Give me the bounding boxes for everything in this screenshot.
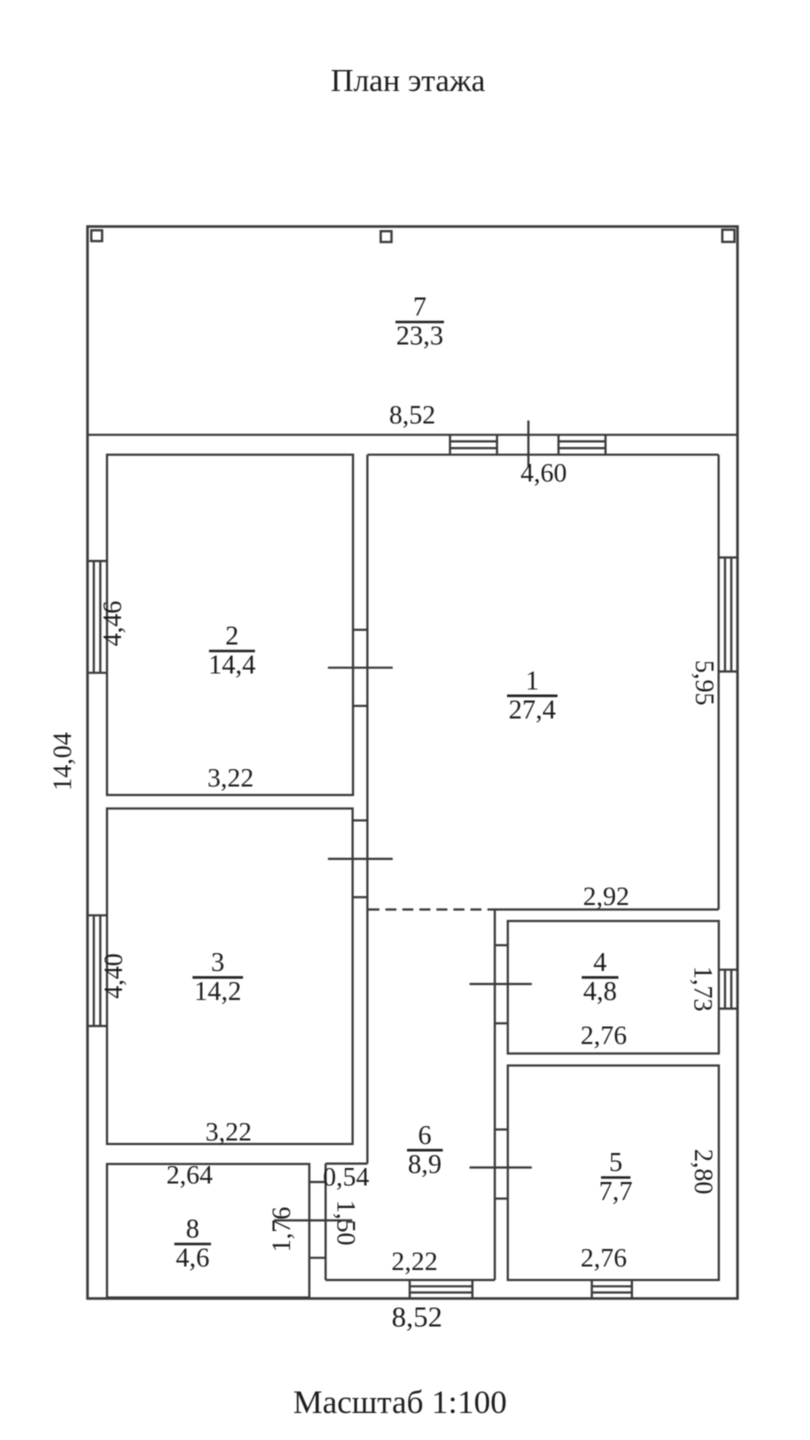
svg-text:2,92: 2,92 xyxy=(583,881,629,911)
svg-text:8,9: 8,9 xyxy=(408,1149,442,1179)
svg-text:1,73: 1,73 xyxy=(689,966,718,1012)
svg-text:7: 7 xyxy=(413,292,427,322)
svg-text:4,8: 4,8 xyxy=(583,976,617,1006)
svg-text:4: 4 xyxy=(593,947,607,977)
svg-text:14,2: 14,2 xyxy=(194,976,241,1006)
svg-text:3,22: 3,22 xyxy=(205,1117,251,1147)
svg-text:23,3: 23,3 xyxy=(396,321,443,351)
svg-text:0,54: 0,54 xyxy=(323,1162,369,1192)
svg-text:Масштаб 1:100: Масштаб 1:100 xyxy=(293,1385,507,1421)
svg-text:4,60: 4,60 xyxy=(521,458,567,488)
svg-text:3: 3 xyxy=(211,947,225,977)
svg-text:8: 8 xyxy=(186,1214,200,1244)
svg-text:8,52: 8,52 xyxy=(389,400,435,430)
svg-text:2: 2 xyxy=(225,621,239,651)
svg-text:1,76: 1,76 xyxy=(267,1207,296,1253)
svg-text:2,76: 2,76 xyxy=(581,1243,627,1273)
svg-text:27,4: 27,4 xyxy=(509,694,557,724)
svg-text:План этажа: План этажа xyxy=(331,63,486,98)
svg-text:6: 6 xyxy=(418,1120,432,1150)
svg-text:8,52: 8,52 xyxy=(392,1302,443,1334)
svg-text:14,4: 14,4 xyxy=(208,650,256,680)
svg-text:2,64: 2,64 xyxy=(166,1160,212,1190)
svg-text:2,76: 2,76 xyxy=(581,1020,627,1050)
svg-text:14,04: 14,04 xyxy=(48,732,77,791)
svg-text:1: 1 xyxy=(525,665,539,695)
svg-text:2,22: 2,22 xyxy=(391,1246,437,1276)
svg-text:2,80: 2,80 xyxy=(689,1149,718,1195)
svg-text:4,46: 4,46 xyxy=(98,601,127,647)
svg-text:5,95: 5,95 xyxy=(690,660,719,706)
svg-text:7,7: 7,7 xyxy=(599,1176,633,1206)
svg-text:1,50: 1,50 xyxy=(332,1200,361,1246)
svg-text:4,6: 4,6 xyxy=(176,1243,210,1273)
svg-text:5: 5 xyxy=(609,1147,623,1177)
svg-text:3,22: 3,22 xyxy=(207,763,253,793)
svg-text:4,40: 4,40 xyxy=(99,953,128,999)
